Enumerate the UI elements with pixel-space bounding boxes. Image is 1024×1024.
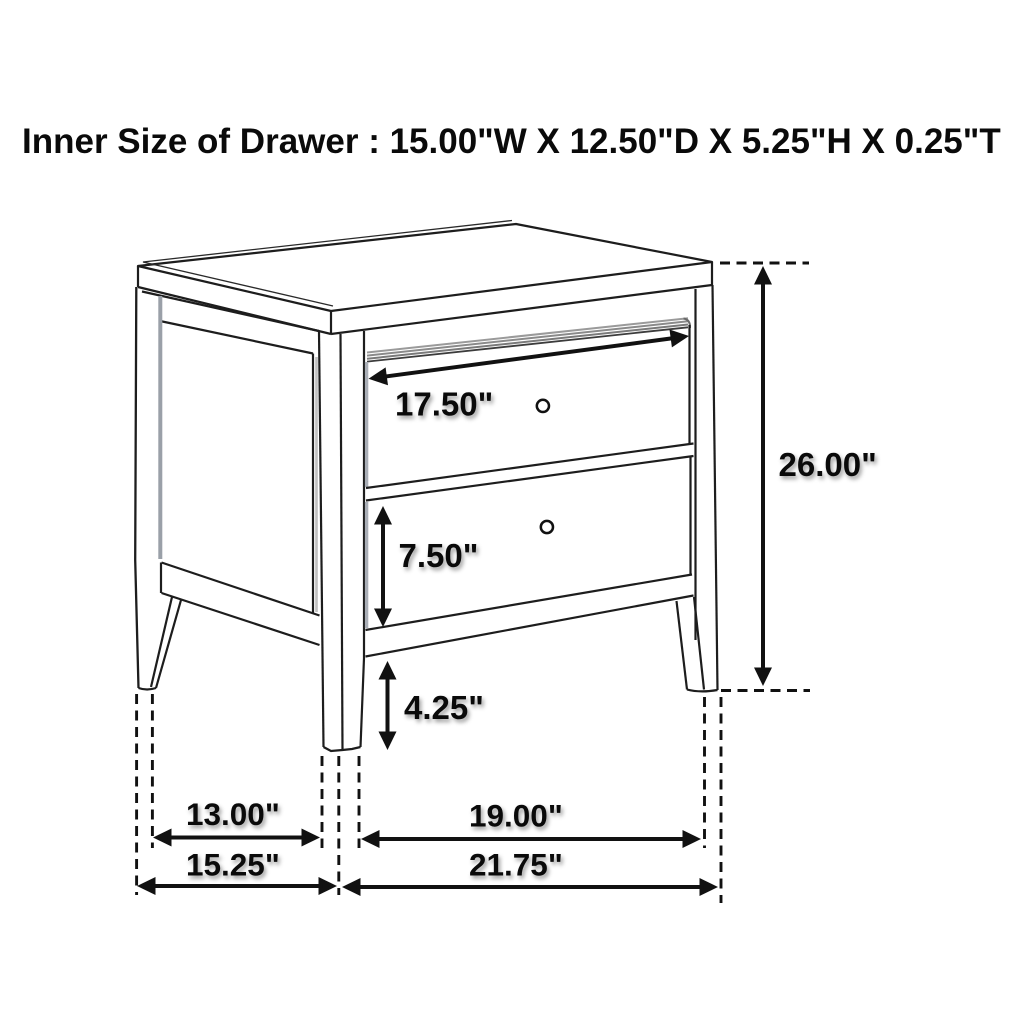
svg-text:4.25": 4.25": [404, 689, 484, 726]
svg-text:15.25": 15.25": [186, 847, 280, 883]
svg-text:26.00": 26.00": [779, 446, 877, 483]
svg-text:13.00": 13.00": [186, 796, 280, 832]
svg-text:19.00": 19.00": [469, 798, 563, 834]
svg-text:17.50": 17.50": [395, 386, 493, 423]
svg-text:21.75": 21.75": [469, 847, 563, 883]
svg-text:7.50": 7.50": [399, 537, 479, 574]
